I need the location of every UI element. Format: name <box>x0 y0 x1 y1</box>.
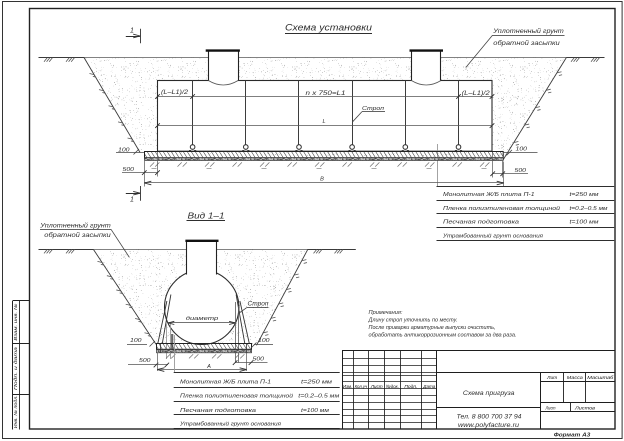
svg-text:t=250 мм: t=250 мм <box>301 379 332 385</box>
svg-text:500: 500 <box>123 167 135 173</box>
svg-text:Подп.: Подп. <box>404 384 417 390</box>
svg-text:После приварки арматурные выпу: После приварки арматурные выпуски очисти… <box>369 325 496 331</box>
svg-text:Пленка полиэтиленовая толщиной: Пленка полиэтиленовая толщиной <box>443 205 560 212</box>
svg-text:(L–L1)/2: (L–L1)/2 <box>161 90 189 96</box>
svg-text:(L–L1)/2: (L–L1)/2 <box>462 91 491 97</box>
svg-text:Монолитная Ж/Б плита П-1: Монолитная Ж/Б плита П-1 <box>443 192 535 198</box>
svg-text:В: В <box>320 176 324 182</box>
svg-text:Утрамбованный грунт основания: Утрамбованный грунт основания <box>179 420 281 427</box>
svg-text:Масштаб: Масштаб <box>587 375 613 381</box>
svg-text:100: 100 <box>118 147 130 153</box>
svg-text:t=100 мм: t=100 мм <box>301 408 329 414</box>
svg-text:1: 1 <box>130 28 134 35</box>
svg-text:Уплотненный грунт: Уплотненный грунт <box>492 28 564 35</box>
svg-text:Примечания:: Примечания: <box>369 310 404 316</box>
svg-text:Листов: Листов <box>574 405 596 411</box>
svg-text:500: 500 <box>515 168 527 174</box>
svg-text:n х 750=L1: n х 750=L1 <box>306 91 346 97</box>
svg-text:Инв. № подл.: Инв. № подл. <box>13 395 18 428</box>
svg-text:Масса: Масса <box>567 375 583 381</box>
svg-text:№док.: №док. <box>386 384 399 390</box>
svg-text:Схема пригруза: Схема пригруза <box>463 390 515 397</box>
svg-text:www.polyfacture.ru: www.polyfacture.ru <box>458 422 520 429</box>
svg-text:t=0.2–0.5 мм: t=0.2–0.5 мм <box>298 394 339 400</box>
svg-text:500: 500 <box>253 356 265 362</box>
svg-text:Лист: Лист <box>370 384 383 390</box>
svg-text:Формат А3: Формат А3 <box>554 433 592 439</box>
svg-text:Длину строп уточнить по месту.: Длину строп уточнить по месту. <box>367 317 457 323</box>
svg-text:100: 100 <box>130 338 142 344</box>
svg-text:Подп. и дата: Подп. и дата <box>13 346 18 390</box>
svg-text:Изм.: Изм. <box>343 384 353 390</box>
svg-text:А: А <box>206 364 211 370</box>
svg-text:Утрамбованный грунт основания: Утрамбованный грунт основания <box>442 232 543 239</box>
svg-text:100: 100 <box>258 338 270 344</box>
svg-text:диаметр: диаметр <box>186 316 220 322</box>
svg-text:500: 500 <box>139 358 151 364</box>
svg-text:Строп: Строп <box>248 302 270 308</box>
svg-text:Уплотненный грунт: Уплотненный грунт <box>39 223 111 230</box>
svg-text:100: 100 <box>516 147 528 153</box>
svg-text:Схема установки: Схема установки <box>285 23 372 33</box>
svg-text:Песчаная подготовка: Песчаная подготовка <box>443 220 519 226</box>
svg-text:t=250 мм: t=250 мм <box>570 192 599 198</box>
svg-text:обработать антикоррозионным со: обработать антикоррозионным составом за … <box>369 333 517 339</box>
svg-text:Дата: Дата <box>422 384 435 390</box>
svg-text:обратной засыпки: обратной засыпки <box>44 232 111 239</box>
svg-text:Строп: Строп <box>362 106 385 112</box>
svg-text:Песчаная подготовка: Песчаная подготовка <box>180 408 256 414</box>
svg-text:Монолитная Ж/Б плита П-1: Монолитная Ж/Б плита П-1 <box>180 379 271 385</box>
svg-text:Лист: Лист <box>545 405 556 411</box>
svg-text:t=0.2–0.5 мм: t=0.2–0.5 мм <box>570 206 608 212</box>
svg-text:Пленка полиэтиленовая толщиной: Пленка полиэтиленовая толщиной <box>180 393 293 400</box>
svg-text:Лит: Лит <box>546 375 557 381</box>
svg-text:Взам. инв. №: Взам. инв. № <box>13 303 18 340</box>
svg-text:Кол.уч: Кол.уч <box>355 384 368 390</box>
svg-text:Вид 1–1: Вид 1–1 <box>188 211 225 220</box>
svg-text:Тел. 8 800 700 37 94: Тел. 8 800 700 37 94 <box>457 414 523 421</box>
svg-text:1: 1 <box>130 197 134 204</box>
svg-text:t=100 мм: t=100 мм <box>570 220 599 226</box>
svg-text:L: L <box>323 119 326 125</box>
svg-text:обратной засыпки: обратной засыпки <box>493 40 560 47</box>
